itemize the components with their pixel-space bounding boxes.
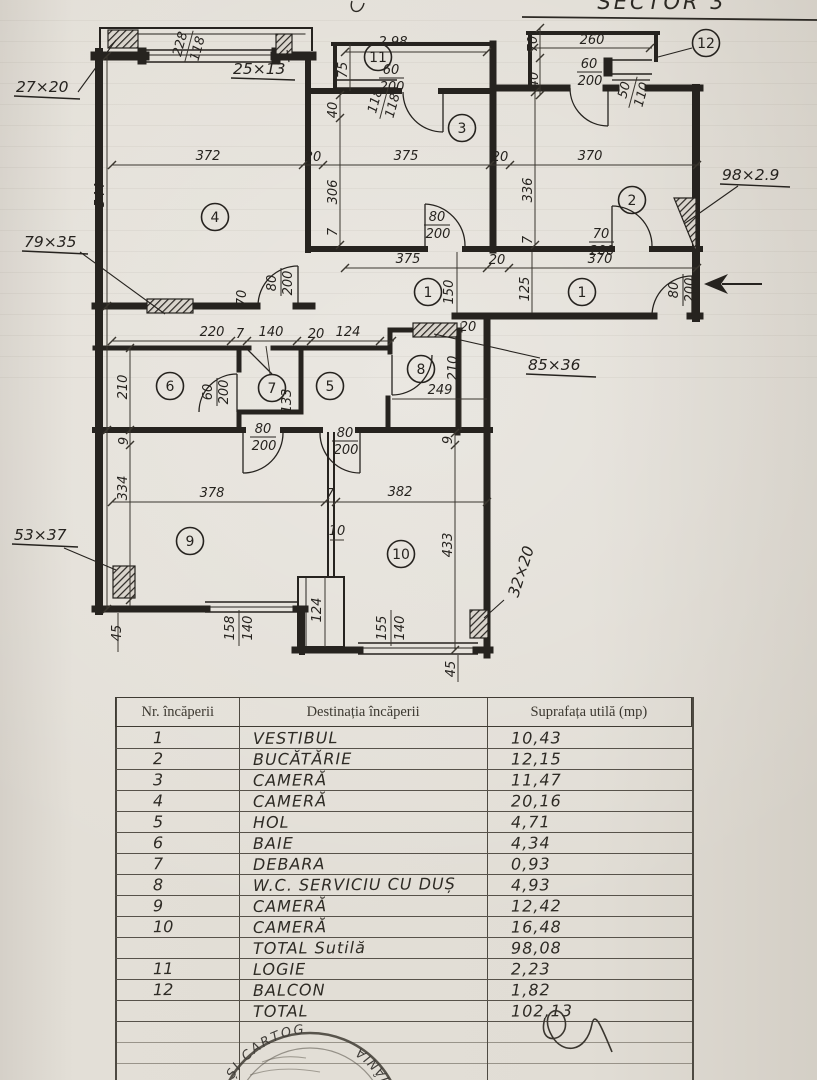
dim-label: 7 bbox=[521, 235, 536, 244]
room-number: 12 bbox=[697, 36, 715, 52]
dim-label: 7 bbox=[326, 227, 341, 236]
dim-label: 336 bbox=[521, 178, 536, 203]
room-number: 9 bbox=[186, 534, 195, 550]
column-header: Destinația încăperii bbox=[240, 704, 487, 721]
door-size: 60200 bbox=[577, 57, 602, 89]
door-size: 70200 bbox=[589, 227, 614, 259]
dim-label: 433 bbox=[441, 533, 456, 558]
dim-label: 20 bbox=[308, 327, 325, 342]
feature-label: 32×20 bbox=[505, 544, 538, 600]
svg-text:158: 158 bbox=[223, 616, 238, 641]
sector-note: SECTOR 3 bbox=[597, 0, 726, 14]
svg-text:80: 80 bbox=[429, 210, 446, 225]
svg-text:200: 200 bbox=[217, 380, 232, 405]
door-size: 80200 bbox=[265, 268, 296, 296]
dim-label: 210 bbox=[446, 356, 461, 381]
dim-fraction: 50 110 bbox=[613, 73, 653, 112]
dimension-labels: 372 20 375 20 370 375 20 370 2.98 260 22… bbox=[93, 27, 654, 678]
dim-label: 372 bbox=[196, 149, 221, 164]
table-header-row: Nr. încăperii Destinația încăperii Supra… bbox=[115, 697, 692, 727]
feature-label: 98×2.9 bbox=[722, 166, 779, 184]
dim-label: 375 bbox=[394, 149, 419, 164]
dim-fraction: 228 118 bbox=[169, 27, 209, 66]
svg-text:80: 80 bbox=[255, 422, 272, 437]
dim-label: 150 bbox=[442, 280, 457, 305]
dim-label: 7 bbox=[236, 327, 245, 342]
svg-text:60: 60 bbox=[201, 384, 216, 401]
dim-label: 140 bbox=[259, 325, 284, 340]
svg-text:200: 200 bbox=[281, 271, 296, 296]
dim-label: 70 bbox=[235, 290, 250, 307]
room-number: 2 bbox=[628, 193, 637, 209]
dim-label: 375 bbox=[396, 252, 421, 267]
dim-label: 7 bbox=[326, 487, 335, 502]
svg-text:200: 200 bbox=[590, 244, 615, 259]
dim-label: 45 bbox=[110, 625, 125, 642]
dim-label: 306 bbox=[326, 180, 341, 205]
dim-label: 210 bbox=[116, 375, 131, 400]
svg-text:200: 200 bbox=[426, 227, 451, 242]
svg-text:80: 80 bbox=[667, 282, 682, 299]
header-rule bbox=[522, 17, 817, 20]
dimension-lines bbox=[103, 24, 701, 682]
svg-text:70: 70 bbox=[593, 227, 610, 242]
door-size: 80200 bbox=[250, 422, 276, 454]
table-row: 4CAMERĂ20,16 bbox=[115, 790, 692, 812]
room-number: 5 bbox=[326, 379, 335, 395]
table-row: 12BALCON1,82 bbox=[115, 979, 692, 1001]
dim-label: 133 bbox=[280, 389, 295, 414]
stamp-text-right: ROMÂNIA bbox=[352, 1043, 404, 1080]
svg-text:140: 140 bbox=[393, 616, 408, 641]
room-number: 7 bbox=[268, 381, 277, 397]
dim-label: 20 bbox=[492, 150, 509, 165]
dim-label: 334 bbox=[116, 476, 131, 501]
dim-label: 45 bbox=[444, 661, 459, 678]
room-number: 4 bbox=[211, 210, 220, 226]
room-number: 11 bbox=[369, 50, 387, 66]
entrance-arrow bbox=[704, 274, 762, 294]
feature-label: 79×35 bbox=[24, 233, 76, 251]
dim-label: 370 bbox=[578, 149, 603, 164]
dim-fraction: 155 140 bbox=[375, 610, 408, 646]
door-size: 80200 bbox=[332, 426, 358, 458]
room-number: 6 bbox=[166, 379, 175, 395]
column-header: Suprafața utilă (mp) bbox=[487, 704, 691, 721]
table-row: 2BUCĂTĂRIE12,15 bbox=[115, 748, 692, 770]
column-header: Nr. încăperii bbox=[116, 704, 240, 721]
table-row: 9CAMERĂ12,42 bbox=[115, 895, 692, 917]
dim-label: 544 bbox=[93, 183, 108, 208]
pen-mark bbox=[351, 1, 364, 11]
svg-text:200: 200 bbox=[334, 443, 359, 458]
dim-label: 20 bbox=[489, 253, 506, 268]
dim-label: 125 bbox=[518, 277, 533, 302]
dim-label: 7 bbox=[387, 327, 396, 342]
dim-label: 124 bbox=[310, 598, 325, 623]
door-size: 60200 bbox=[201, 378, 232, 406]
svg-text:60: 60 bbox=[581, 57, 598, 72]
dim-label: 9 bbox=[441, 436, 456, 444]
dim-label: 9 bbox=[117, 437, 132, 445]
dim-label: 2.98 bbox=[379, 35, 408, 50]
table-row: 5HOL4,71 bbox=[115, 811, 692, 833]
dim-label: 220 bbox=[200, 325, 225, 340]
feature-label: 53×37 bbox=[14, 526, 67, 544]
svg-text:200: 200 bbox=[380, 80, 405, 95]
dim-label: 124 bbox=[336, 325, 361, 340]
room-number: 8 bbox=[417, 362, 426, 378]
dim-label: 40 bbox=[326, 102, 341, 119]
dim-label: 382 bbox=[388, 485, 413, 500]
table-row: 8W.C. SERVICIU CU DUȘ4,93 bbox=[115, 874, 692, 896]
dim-label: 249 bbox=[428, 383, 453, 398]
windows bbox=[138, 48, 652, 654]
feature-label: 85×36 bbox=[528, 356, 581, 374]
room-number: 3 bbox=[458, 121, 467, 137]
dim-fraction: 158 140 bbox=[223, 610, 256, 646]
svg-text:200: 200 bbox=[683, 278, 698, 303]
svg-text:200: 200 bbox=[252, 439, 277, 454]
official-stamp-area: ȚIE ȘI CARTOGRAFIE ROMÂNIA bbox=[0, 1000, 817, 1080]
dim-label: 70 bbox=[526, 36, 541, 53]
room-number: 10 bbox=[392, 547, 410, 563]
dim-label: 20 bbox=[460, 320, 477, 335]
table-row: 10CAMERĂ16,48 bbox=[115, 916, 692, 938]
dim-label: 378 bbox=[200, 486, 225, 501]
dim-label: 75 bbox=[336, 62, 351, 79]
door-size: 60200 bbox=[379, 63, 404, 95]
feature-label: 25×13 bbox=[233, 60, 285, 78]
signature bbox=[543, 1011, 612, 1052]
dim-label: 20 bbox=[305, 150, 322, 165]
svg-text:140: 140 bbox=[241, 616, 256, 641]
svg-text:80: 80 bbox=[337, 426, 354, 441]
dim-label: 10 bbox=[329, 524, 346, 539]
stamp-text-left: ȚIE ȘI CARTOGRAFIE bbox=[0, 1000, 307, 1080]
svg-text:200: 200 bbox=[578, 74, 603, 89]
table-row: 3CAMERĂ11,47 bbox=[115, 769, 692, 791]
feature-label: 27×20 bbox=[16, 78, 69, 96]
table-row: 7DEBARA0,93 bbox=[115, 853, 692, 875]
room-number: 1 bbox=[424, 285, 433, 301]
table-row: 1VESTIBUL10,43 bbox=[115, 727, 692, 749]
table-row: TOTAL Sutilă98,08 bbox=[115, 937, 692, 959]
dim-label: 260 bbox=[580, 33, 605, 48]
room-number: 1 bbox=[578, 285, 587, 301]
scanned-floor-plan-page: SECTOR 3 bbox=[0, 0, 817, 1080]
svg-text:155: 155 bbox=[375, 616, 390, 641]
door-size: 80200 bbox=[424, 210, 450, 242]
dim-label: 40 bbox=[527, 72, 542, 89]
table-row: 11LOGIE2,23 bbox=[115, 958, 692, 980]
table-row: 6BAIE4,34 bbox=[115, 832, 692, 854]
svg-text:80: 80 bbox=[265, 275, 280, 292]
door-size: 80200 bbox=[667, 274, 698, 306]
floor-plan-drawing: SECTOR 3 bbox=[0, 0, 817, 695]
